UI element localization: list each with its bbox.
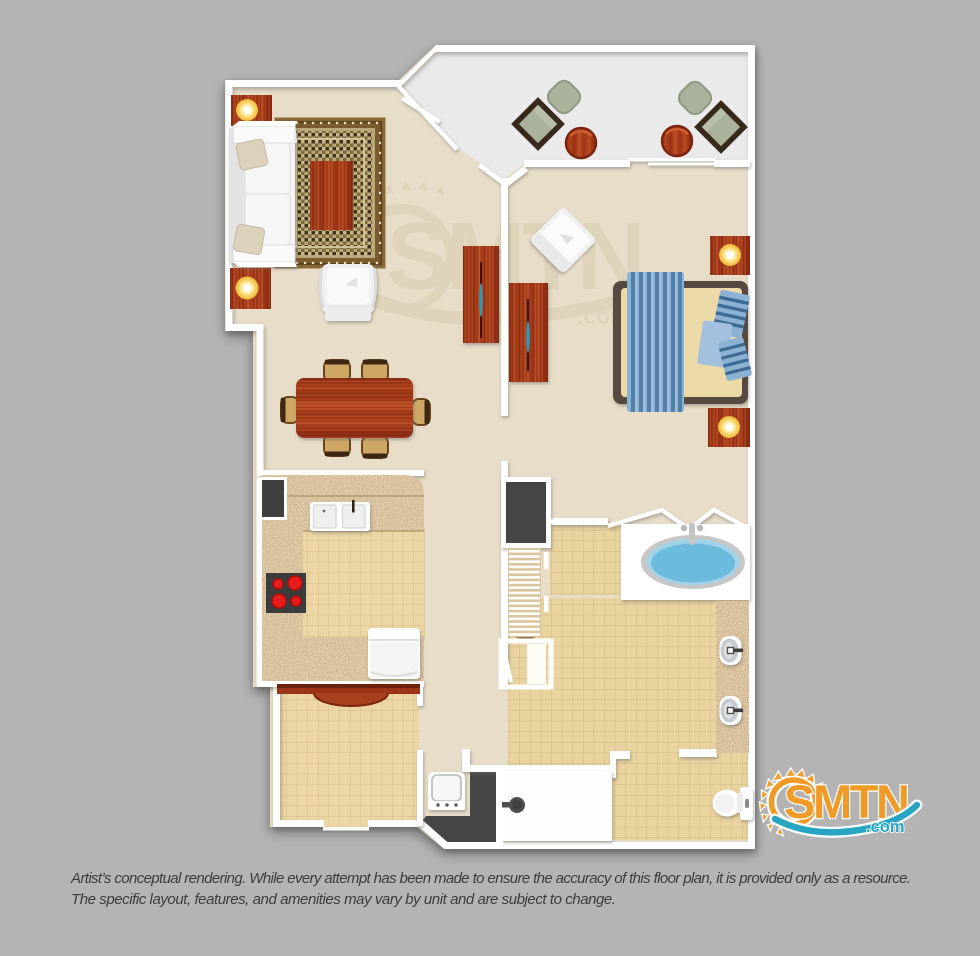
svg-text:The specific layout, features,: The specific layout, features, and ameni…	[71, 891, 616, 908]
svg-text:.com: .com	[866, 818, 905, 836]
svg-text:Artist’s conceptual rendering.: Artist’s conceptual rendering. While eve…	[70, 870, 911, 887]
